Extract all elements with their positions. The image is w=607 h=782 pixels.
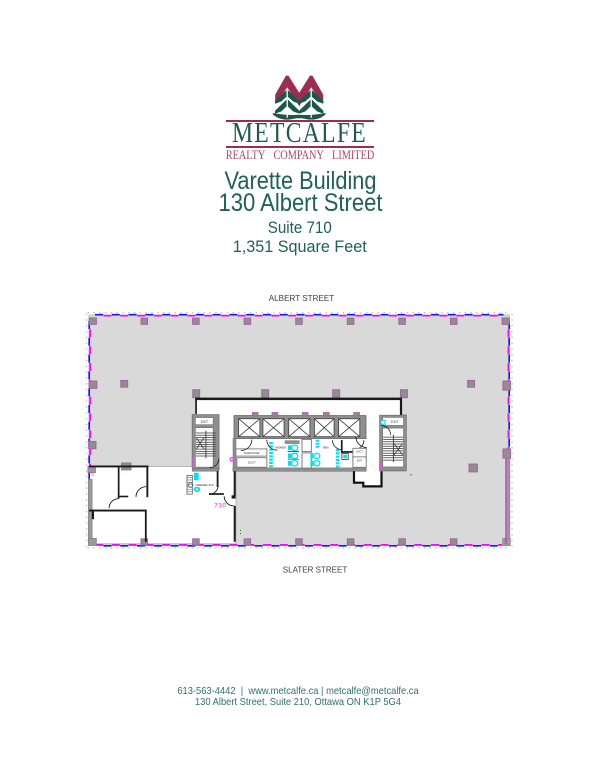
svg-text:SLATER STREET: SLATER STREET: [283, 565, 348, 575]
svg-text:EXIT: EXIT: [357, 460, 363, 463]
svg-text:5: 5: [91, 472, 94, 478]
svg-text:ALBERT STREET: ALBERT STREET: [269, 293, 335, 303]
svg-text:DUCT: DUCT: [248, 461, 256, 465]
svg-text:GENERAL W.S.: GENERAL W.S.: [196, 483, 215, 487]
svg-text:EXIT: EXIT: [201, 420, 208, 424]
svg-text:TELEPHONE: TELEPHONE: [244, 451, 260, 455]
svg-text:EXIT: EXIT: [391, 420, 398, 424]
svg-text:DUCT: DUCT: [356, 451, 363, 454]
svg-text:710: 710: [214, 502, 226, 509]
svg-text:WOMEN: WOMEN: [276, 446, 286, 450]
svg-text:MEN: MEN: [323, 446, 329, 450]
